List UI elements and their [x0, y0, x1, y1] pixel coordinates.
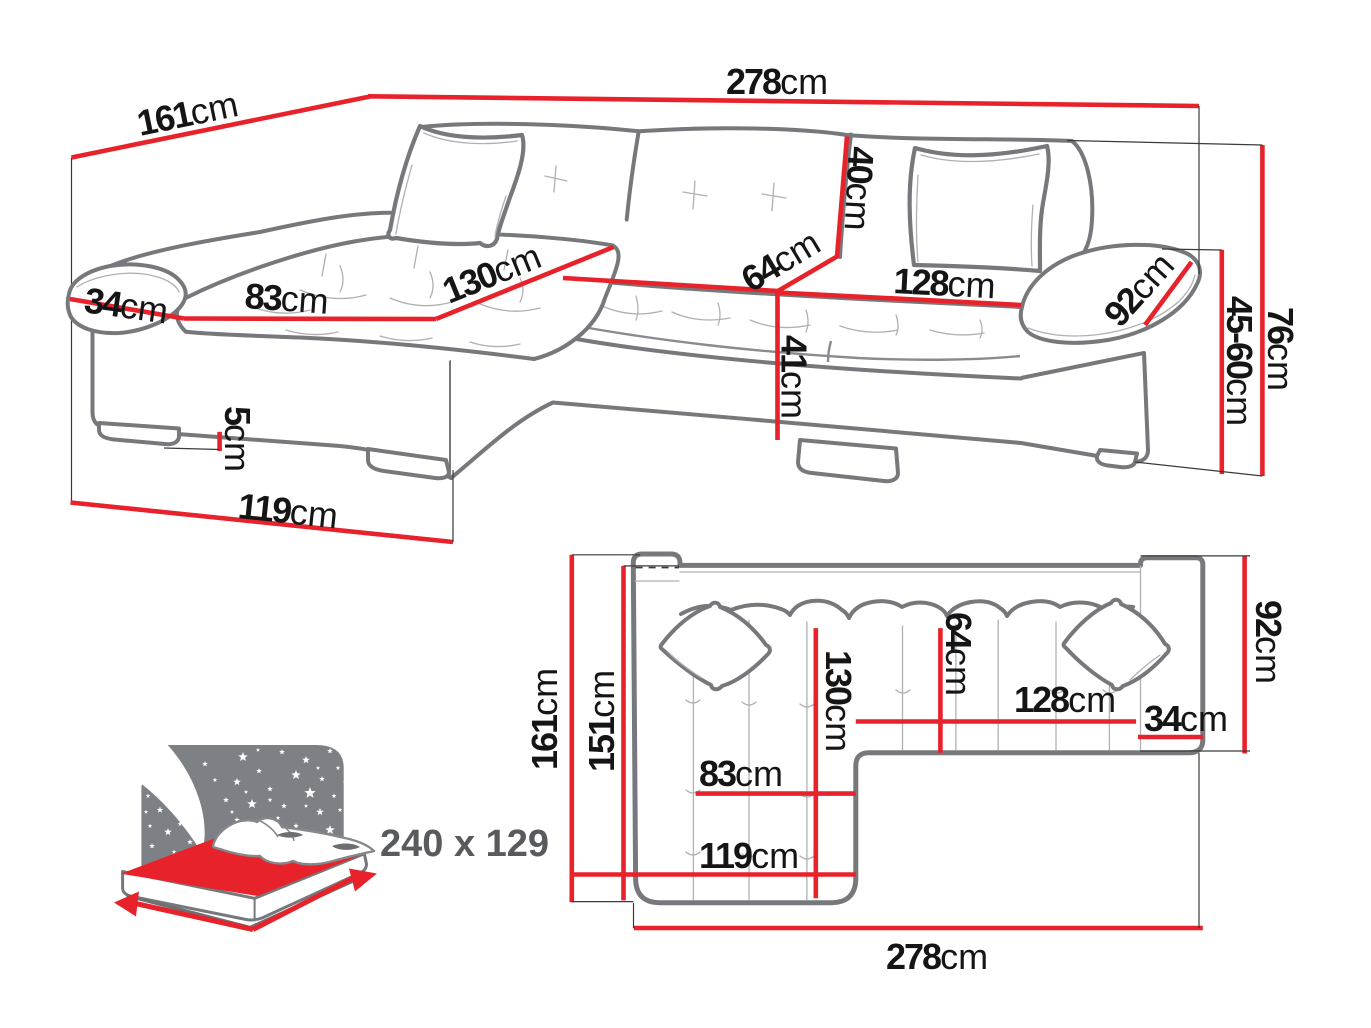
svg-text:5cm: 5cm — [217, 406, 258, 472]
svg-text:130cm: 130cm — [818, 650, 859, 752]
svg-text:41cm: 41cm — [774, 335, 815, 419]
svg-text:151cm: 151cm — [581, 670, 622, 772]
svg-text:278cm: 278cm — [726, 61, 828, 102]
svg-text:45-60cm: 45-60cm — [1219, 296, 1260, 426]
svg-text:64cm: 64cm — [938, 612, 979, 696]
svg-text:83cm: 83cm — [699, 753, 783, 794]
svg-text:34cm: 34cm — [1144, 698, 1228, 739]
svg-text:240 x 129: 240 x 129 — [380, 823, 549, 865]
svg-text:119cm: 119cm — [699, 835, 799, 876]
svg-text:128cm: 128cm — [1014, 679, 1116, 720]
svg-text:76cm: 76cm — [1260, 307, 1301, 391]
svg-text:83cm: 83cm — [243, 275, 330, 322]
svg-text:278cm: 278cm — [886, 936, 988, 977]
svg-text:128cm: 128cm — [893, 260, 997, 306]
svg-text:161cm: 161cm — [524, 668, 565, 770]
svg-text:92cm: 92cm — [1248, 600, 1289, 684]
svg-text:40cm: 40cm — [837, 146, 882, 232]
